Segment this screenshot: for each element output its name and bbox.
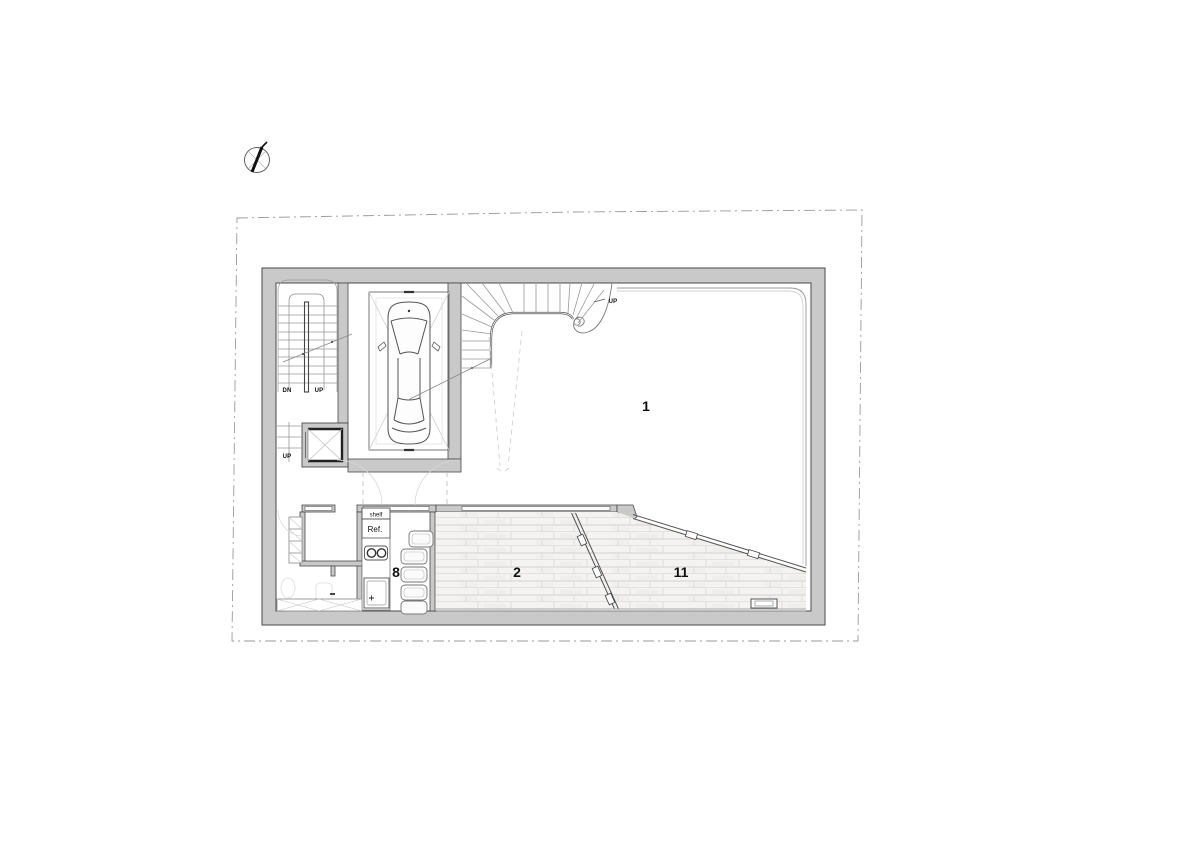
room2-number: 2 <box>513 564 521 580</box>
curved-stair-up-label: UP <box>609 299 618 305</box>
floor-plan-drawing: DN UP UP <box>0 0 1200 848</box>
dining-area: 8 <box>392 531 433 614</box>
room8-number: 8 <box>392 564 400 580</box>
stair-dn-label: DN <box>282 388 291 394</box>
terrace-flooring <box>436 512 806 610</box>
toilet-fixture <box>281 578 295 598</box>
room8-right-wall <box>430 512 435 611</box>
chair <box>401 567 427 582</box>
stair-garage-wall <box>338 283 348 423</box>
curved-stair-treads <box>462 283 604 368</box>
room1-number: 1 <box>642 398 650 414</box>
stair-up-label: UP <box>315 388 324 394</box>
chair <box>409 531 433 547</box>
chair <box>401 549 427 564</box>
room11-number: 11 <box>674 564 689 580</box>
garage-right-wall <box>448 283 461 459</box>
curved-staircase: UP <box>462 283 617 471</box>
curved-stair-outer-edge <box>574 283 612 333</box>
north-arrow-icon <box>245 142 270 173</box>
bench-storage <box>277 599 362 611</box>
floor-drain <box>751 599 777 608</box>
chair <box>401 601 427 614</box>
stair-above-projection <box>489 331 522 471</box>
car-lift <box>369 292 492 450</box>
stair-handrail <box>305 302 309 392</box>
shelf-ladder <box>289 517 302 563</box>
toilet-room <box>277 510 362 611</box>
shelf-label: shelf <box>370 513 383 519</box>
refrigerator-label: Ref. <box>368 525 383 534</box>
floor-plan-page: DN UP UP <box>0 0 1200 848</box>
chairs <box>401 531 433 614</box>
stair-up-lower-label: UP <box>283 454 292 460</box>
toilet-wall-horizontal <box>300 561 365 566</box>
kitchen: shelf Ref. <box>362 508 390 610</box>
car-icon <box>378 302 440 444</box>
toilet-wall-stub <box>331 566 335 576</box>
curved-stair-railing <box>491 313 573 368</box>
chair <box>401 585 427 600</box>
stair-treads <box>278 306 337 383</box>
